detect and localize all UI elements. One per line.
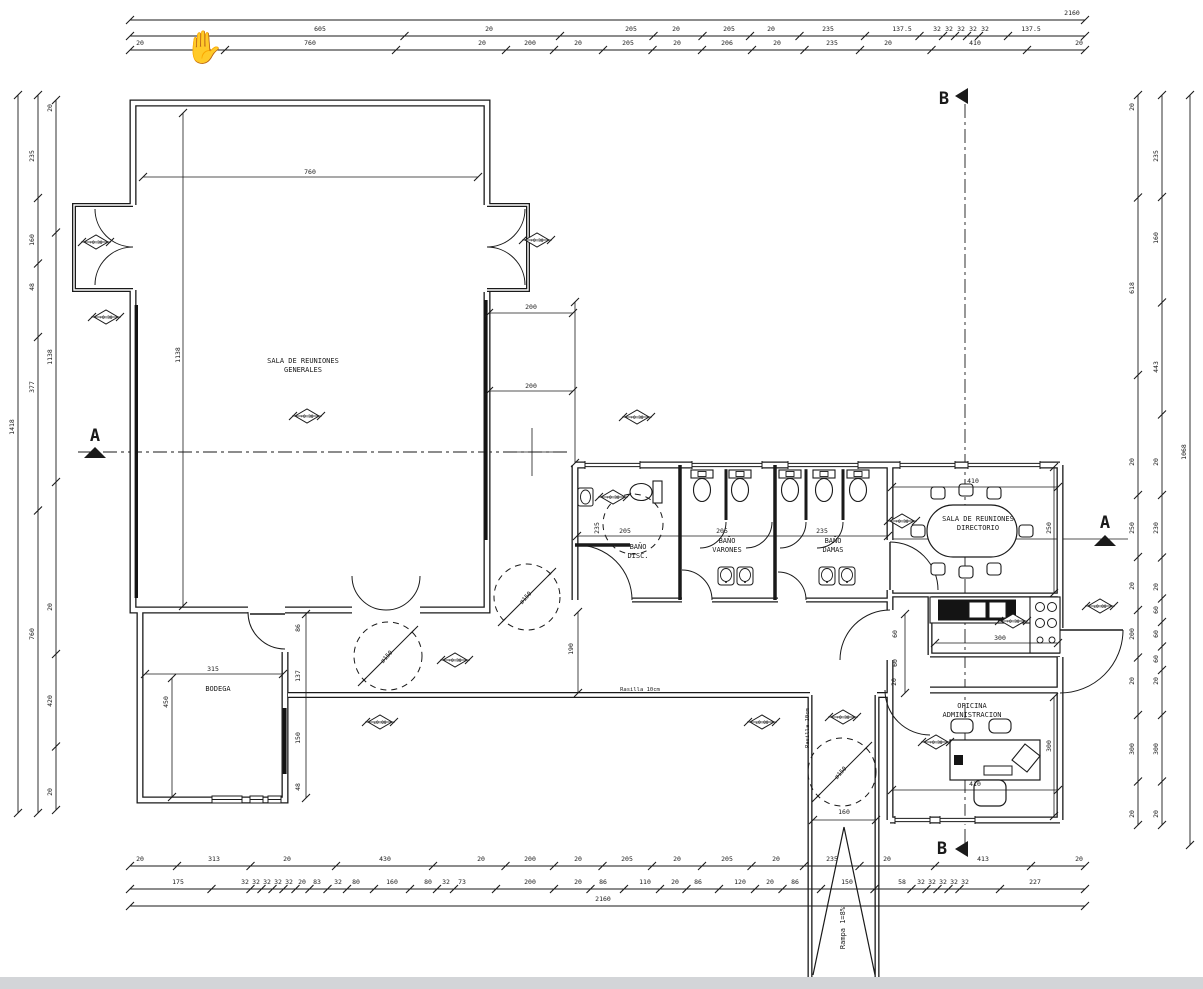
dim-label: 20 xyxy=(478,39,486,47)
dim-label: 235 xyxy=(826,39,838,47)
dim-label: 20 xyxy=(1128,582,1136,590)
dim-label: 110 xyxy=(639,878,651,886)
dim-label: 20 xyxy=(1152,458,1160,466)
bottom-strip xyxy=(0,977,1203,989)
dim-label: 32 xyxy=(252,878,260,886)
room-label: DAMAS xyxy=(822,546,843,554)
dim-label: 32 xyxy=(241,878,249,886)
dim-label: 760 xyxy=(304,39,316,47)
dim-label: 20 xyxy=(883,855,891,863)
window-opening xyxy=(788,461,858,469)
level-value: +0.30 xyxy=(1007,619,1020,625)
dim-label: 20 xyxy=(574,878,582,886)
sink-icon xyxy=(839,567,855,585)
sink-icon xyxy=(819,567,835,585)
dim-label: 32 xyxy=(928,878,936,886)
room-label: GENERALES xyxy=(284,366,322,374)
dim-label: 86 xyxy=(694,878,702,886)
dim-label: 410 xyxy=(969,780,981,788)
dim-label: 413 xyxy=(977,855,989,863)
dim-label: 20 xyxy=(673,39,681,47)
dim-label: 20 xyxy=(672,25,680,33)
chair-icon xyxy=(911,525,925,537)
chair-icon xyxy=(1019,525,1033,537)
room-label: OFICINA xyxy=(957,702,987,710)
dim-label: 205 xyxy=(716,527,728,535)
room-label: BAÑO xyxy=(825,536,842,545)
dim-label: 205 xyxy=(621,855,633,863)
dim-label: 20 xyxy=(46,104,54,112)
cad-viewport: 2160605202052020520235137.53232323232137… xyxy=(0,0,1203,989)
dim-label: 32 xyxy=(950,878,958,886)
dim-label: 32 xyxy=(263,878,271,886)
annotation-text: Rasilla 10cm xyxy=(805,707,811,747)
dim-label: 235 xyxy=(816,527,828,535)
dim-label: 20 xyxy=(1152,810,1160,818)
dim-label: 200 xyxy=(524,878,536,886)
dim-label: 20 xyxy=(772,855,780,863)
dim-label: 200 xyxy=(525,303,537,311)
dim-label: 20 xyxy=(673,855,681,863)
dim-label: 86 xyxy=(791,878,799,886)
dim-label: 410 xyxy=(969,39,981,47)
dim-label: 20 xyxy=(485,25,493,33)
dim-label: 200 xyxy=(524,39,536,47)
dim-label: 60 xyxy=(1152,655,1160,663)
room-label: BAÑO xyxy=(630,542,647,551)
dim-label: 205 xyxy=(622,39,634,47)
dim-label: 86 xyxy=(294,624,302,632)
dim-label: 377 xyxy=(28,381,36,393)
dim-label: 20 xyxy=(1152,677,1160,685)
dim-label: 2160 xyxy=(1064,9,1080,17)
dim-label: 20 xyxy=(574,855,582,863)
dim-label: 20 xyxy=(1152,583,1160,591)
level-value: +0.30 xyxy=(90,240,103,246)
dim-label: 20 xyxy=(574,39,582,47)
dim-label: 32 xyxy=(969,25,977,33)
dim-label: 20 xyxy=(136,855,144,863)
dim-label: 20 xyxy=(1128,458,1136,466)
dim-label: 137.5 xyxy=(892,25,912,33)
level-value: +0.30 xyxy=(837,715,850,721)
room-label: DISC. xyxy=(627,552,648,560)
dim-label: 250 xyxy=(1045,522,1053,534)
dim-label: 227 xyxy=(1029,878,1041,886)
level-value: +0.30 xyxy=(896,519,909,525)
dim-label: 150 xyxy=(294,732,302,744)
dim-label: 32 xyxy=(961,878,969,886)
level-value: ±0.00 xyxy=(374,720,387,726)
dim-label: 60 xyxy=(891,630,899,638)
dim-label: 80 xyxy=(424,878,432,886)
dim-label: 160 xyxy=(1152,232,1160,244)
window-opening xyxy=(940,816,975,824)
dim-label: 618 xyxy=(1128,282,1136,294)
dim-label: 175 xyxy=(172,878,184,886)
level-value: ±0.00 xyxy=(1094,604,1107,610)
dim-label: 300 xyxy=(1045,740,1053,752)
dim-label: 83 xyxy=(313,878,321,886)
dim-label: 160 xyxy=(838,808,850,816)
dim-label: 32 xyxy=(945,25,953,33)
level-value: +0.30 xyxy=(449,658,462,664)
dim-label: 20 xyxy=(1075,855,1083,863)
window-strip xyxy=(283,708,287,774)
dim-label: 20 xyxy=(884,39,892,47)
room-label: DIRECTORIO xyxy=(957,524,999,532)
window-opening xyxy=(585,461,640,469)
dim-label: 250 xyxy=(1128,522,1136,534)
dim-label: 20 xyxy=(477,855,485,863)
dim-label: 137 xyxy=(294,670,302,682)
room-label: BAÑO xyxy=(719,536,736,545)
dim-label: 300 xyxy=(1152,743,1160,755)
dim-label: 315 xyxy=(207,665,219,673)
chair-icon xyxy=(931,563,945,575)
dim-label: 20 xyxy=(136,39,144,47)
dim-label: 86 xyxy=(599,878,607,886)
dim-label: 150 xyxy=(841,878,853,886)
dim-label: 137.5 xyxy=(1021,25,1041,33)
dim-label: 760 xyxy=(28,628,36,640)
dim-label: 190 xyxy=(567,643,575,655)
dim-label: 20 xyxy=(1075,39,1083,47)
section-letter: A xyxy=(90,426,100,446)
level-value: +0.30 xyxy=(531,238,544,244)
dim-label: 205 xyxy=(721,855,733,863)
dim-label: 1138 xyxy=(174,347,182,363)
room-label: SALA DE REUNIONES xyxy=(267,357,339,365)
dim-label: 313 xyxy=(208,855,220,863)
dim-label: 1418 xyxy=(8,419,16,435)
dim-label: 1068 xyxy=(1180,444,1188,460)
dim-label: 73 xyxy=(458,878,466,886)
level-value: ±0.00 xyxy=(756,720,769,726)
dim-label: 20 xyxy=(1128,677,1136,685)
dim-label: 20 xyxy=(671,878,679,886)
floorplan-canvas[interactable]: 2160605202052020520235137.53232323232137… xyxy=(0,0,1203,989)
sink-icon xyxy=(578,488,593,506)
dim-label: 60 xyxy=(1152,630,1160,638)
dim-label: 20 xyxy=(766,878,774,886)
dim-label: 235 xyxy=(28,150,36,162)
window-opening xyxy=(968,461,1040,469)
room-label: ADMINISTRACION xyxy=(942,711,1001,719)
chair-icon xyxy=(951,719,973,733)
dim-label: 235 xyxy=(826,855,838,863)
window-opening xyxy=(692,461,762,469)
dim-label: 58 xyxy=(898,878,906,886)
dim-label: 200 xyxy=(525,382,537,390)
dim-label: 443 xyxy=(1152,361,1160,373)
window-opening xyxy=(895,816,930,824)
dim-label: 20 xyxy=(298,878,306,886)
dim-label: 32 xyxy=(442,878,450,886)
sink-icon xyxy=(718,567,734,585)
section-letter: A xyxy=(1100,513,1110,533)
sink-icon xyxy=(737,567,753,585)
dim-label: 605 xyxy=(314,25,326,33)
annotation-text: Rasilla 10cm xyxy=(620,687,660,693)
level-value: +0.30 xyxy=(607,495,620,501)
window-opening xyxy=(900,461,955,469)
chair-icon xyxy=(987,563,1001,575)
dim-label: 120 xyxy=(734,878,746,886)
dim-label: 20 xyxy=(890,678,898,686)
chair-icon xyxy=(959,484,973,496)
chair-icon xyxy=(987,487,1001,499)
section-letter: B xyxy=(939,89,949,109)
dim-label: 60 xyxy=(891,659,899,667)
dim-label: 48 xyxy=(28,283,36,291)
dim-label: 160 xyxy=(28,234,36,246)
dim-label: 32 xyxy=(939,878,947,886)
dim-label: 60 xyxy=(1152,606,1160,614)
annotation-text: Rampa 1=8% xyxy=(839,906,847,949)
dim-label: 32 xyxy=(274,878,282,886)
dim-label: 205 xyxy=(723,25,735,33)
dim-label: 32 xyxy=(957,25,965,33)
dim-label: 20 xyxy=(773,39,781,47)
window-strip xyxy=(484,300,487,540)
dim-label: 32 xyxy=(285,878,293,886)
dim-label: 410 xyxy=(967,477,979,485)
dim-label: 760 xyxy=(304,168,316,176)
stove-icon xyxy=(1030,597,1060,653)
dim-label: 160 xyxy=(386,878,398,886)
dim-label: 20 xyxy=(46,603,54,611)
dim-label: 32 xyxy=(917,878,925,886)
window-strip xyxy=(135,305,138,598)
dim-label: 430 xyxy=(379,855,391,863)
chair-icon xyxy=(959,566,973,578)
room-label: SALA DE REUNIONES xyxy=(942,515,1014,523)
dim-label: 235 xyxy=(822,25,834,33)
level-value: +0.30 xyxy=(301,414,314,420)
dim-label: 2160 xyxy=(595,895,611,903)
room-label: VARONES xyxy=(712,546,742,554)
dim-label: 32 xyxy=(981,25,989,33)
dim-label: 450 xyxy=(162,696,170,708)
dim-label: 32 xyxy=(933,25,941,33)
level-value: +0.30 xyxy=(631,415,644,421)
level-value: +0.30 xyxy=(930,740,943,746)
dim-label: 20 xyxy=(46,788,54,796)
chair-icon xyxy=(989,719,1011,733)
section-letter: B xyxy=(937,839,947,859)
dim-label: 1138 xyxy=(46,349,54,365)
dim-label: 20 xyxy=(1128,810,1136,818)
level-value: +0.30 xyxy=(100,315,113,321)
dim-label: 420 xyxy=(46,695,54,707)
dim-label: 20 xyxy=(1128,103,1136,111)
dim-label: 48 xyxy=(294,783,302,791)
dim-label: 230 xyxy=(1152,522,1160,534)
dim-label: 235 xyxy=(593,522,601,534)
dim-label: 300 xyxy=(994,634,1006,642)
chair-icon xyxy=(931,487,945,499)
dim-label: 205 xyxy=(625,25,637,33)
hand-cursor-icon: ✋ xyxy=(184,28,224,66)
room-label: BODEGA xyxy=(205,685,231,693)
dim-label: 20 xyxy=(283,855,291,863)
dim-label: 32 xyxy=(334,878,342,886)
dim-label: 300 xyxy=(1128,743,1136,755)
dim-label: 235 xyxy=(1152,150,1160,162)
dim-label: 205 xyxy=(619,527,631,535)
dim-label: 80 xyxy=(352,878,360,886)
dim-label: 200 xyxy=(1128,628,1136,640)
dim-label: 200 xyxy=(524,855,536,863)
dim-label: 206 xyxy=(721,39,733,47)
dim-label: 20 xyxy=(767,25,775,33)
